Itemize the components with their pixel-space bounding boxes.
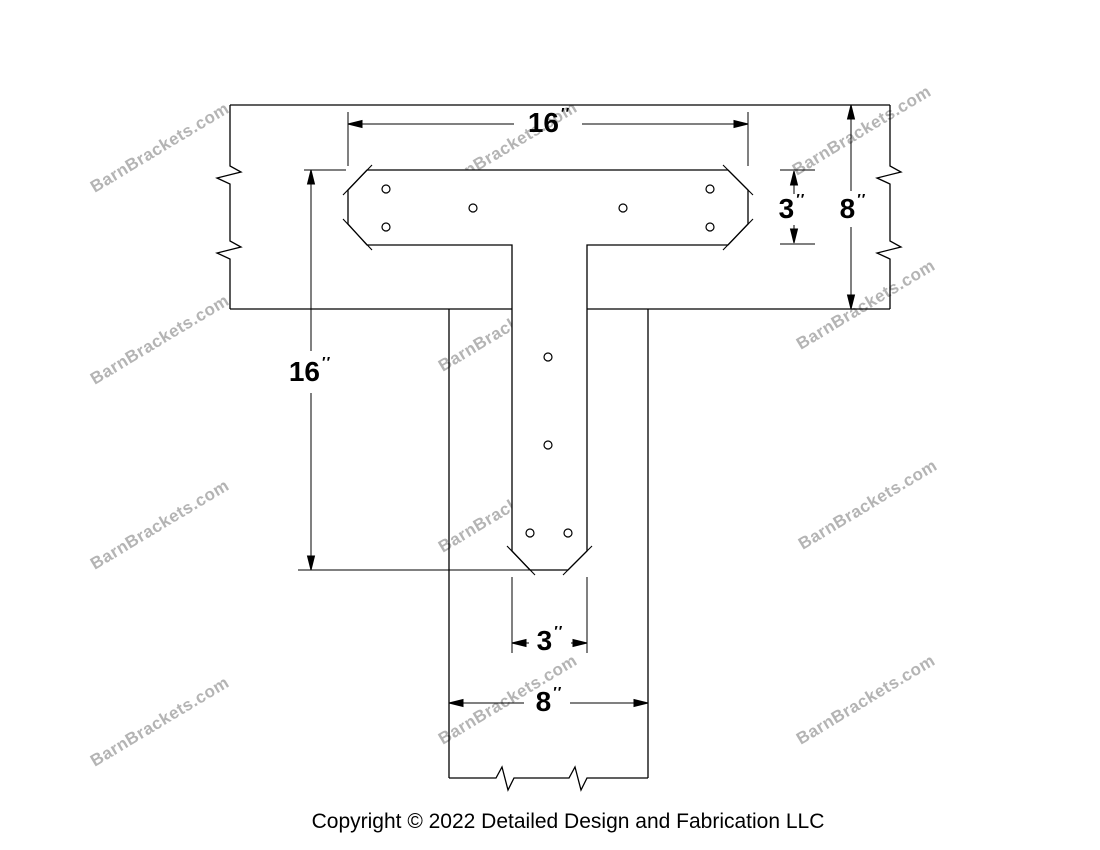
dimension-arrow — [791, 229, 798, 243]
dim-stem-width-bottom-label: 3 ′′ — [537, 627, 564, 655]
inch-mark: ′′ — [553, 685, 562, 700]
post-bottom-edge-break-marks — [449, 767, 648, 790]
dim-value: 3 — [779, 195, 795, 223]
dim-value: 16 — [289, 358, 320, 386]
dimension-arrow — [734, 121, 748, 128]
dim-plate-height-left-label: 16 ′′ — [289, 358, 331, 386]
bolt-hole — [382, 185, 390, 193]
dimension-arrow — [791, 171, 798, 185]
dimension-arrow — [848, 295, 855, 309]
bolt-hole — [382, 223, 390, 231]
dimension-arrow — [634, 700, 648, 707]
drawing-page: BarnBrackets.com BarnBrackets.com BarnBr… — [0, 0, 1100, 850]
bolt-hole — [706, 223, 714, 231]
dimension-arrow — [449, 700, 463, 707]
dimension-arrow — [848, 105, 855, 119]
inch-mark: ′′ — [561, 106, 570, 121]
dim-plate-bar-height-label: 3 ′′ — [779, 195, 806, 223]
copyright-text: Copyright © 2022 Detailed Design and Fab… — [312, 810, 825, 834]
bolt-hole — [544, 441, 552, 449]
dim-post-width-bottom-label: 8 ′′ — [536, 688, 563, 716]
dimension-arrow — [308, 170, 315, 184]
dim-beam-height-right-label: 8 ′′ — [840, 195, 867, 223]
bolt-hole — [469, 204, 477, 212]
inch-mark: ′′ — [796, 192, 805, 207]
dim-value: 8 — [536, 688, 552, 716]
t-bracket-plate — [348, 170, 748, 570]
bolt-hole — [544, 353, 552, 361]
inch-mark: ′′ — [554, 624, 563, 639]
dimension-arrow — [308, 556, 315, 570]
dim-value: 8 — [840, 195, 856, 223]
dimension-arrow — [348, 121, 362, 128]
dim-plate-width-top-label: 16 ′′ — [528, 109, 570, 137]
beam-left-edge-break-marks — [217, 105, 241, 309]
beam-right-edge-break-marks — [877, 105, 901, 309]
bolt-hole — [564, 529, 572, 537]
dimension-arrow — [573, 640, 587, 647]
dimension-arrow — [512, 640, 526, 647]
inch-mark: ′′ — [857, 192, 866, 207]
dim-value: 16 — [528, 109, 559, 137]
bolt-hole — [619, 204, 627, 212]
dim-value: 3 — [537, 627, 553, 655]
bolt-hole — [526, 529, 534, 537]
bolt-hole — [706, 185, 714, 193]
inch-mark: ′′ — [322, 355, 331, 370]
